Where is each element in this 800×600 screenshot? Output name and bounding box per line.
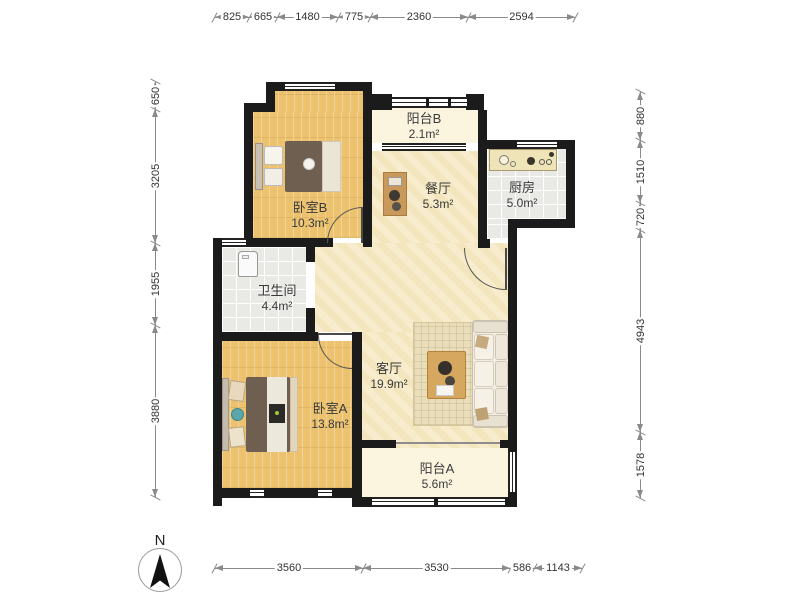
room-label-living: 客厅 19.9m² [354,361,424,392]
sink [499,155,509,165]
room-area: 5.6m² [422,477,453,492]
window [392,97,467,108]
wall-segment [364,238,372,247]
vase [389,190,400,201]
dimension: 2594 [468,17,575,18]
room-area: 19.9m² [370,377,407,392]
dimension: 4943 [640,230,641,432]
pillow [228,426,246,448]
room-name: 厨房 [509,180,535,196]
window-mullion [434,497,438,507]
room-label-dining: 餐厅 5.3m² [403,181,473,212]
north-label: N [136,532,184,549]
dimension: 1510 [640,140,641,203]
dimension: 1955 [155,243,156,325]
wall-segment [362,440,396,448]
stove-burner [546,159,552,165]
room-label-balcony-b: 阳台B 2.1m² [389,111,459,142]
room-name: 阳台A [420,461,455,477]
back-cushion [495,334,508,360]
window [508,452,517,492]
dimension: 3205 [155,109,156,243]
dimension: 586 [510,568,534,569]
room-name: 餐厅 [425,181,451,197]
sofa-icon [472,320,509,428]
room-area: 5.0m² [507,196,538,211]
sliding-door-track [396,442,500,444]
washer-panel [242,255,249,259]
room-area: 13.8m² [311,417,348,432]
room-area: 2.1m² [409,127,440,142]
dimension: 775 [338,17,370,18]
wall-segment [213,332,318,341]
dimension: 3880 [155,325,156,497]
washing-machine-icon [238,251,258,277]
stove-burner [539,159,545,165]
round-pillow [231,408,244,421]
room-label-kitchen: 厨房 5.0m² [487,180,557,211]
dimension: 825 [215,17,249,18]
pillow [264,168,283,186]
wall-segment [478,239,490,248]
window [285,82,335,91]
wall-segment [566,140,575,228]
room-area: 10.3m² [291,216,328,231]
dimension: 1480 [277,17,338,18]
wall-segment [478,110,487,248]
window [372,497,505,507]
throw-pillow [475,335,489,349]
window-mullion [448,97,451,108]
kitchen-counter-icon [489,149,557,171]
room-label-bedroom-b: 卧室B 10.3m² [275,200,345,231]
wall-segment [508,219,575,228]
dimension: 1578 [640,432,641,498]
compass: N [136,532,184,596]
stove-burner [527,157,535,165]
cabinet-tray [388,177,402,186]
stove-knob [549,152,554,157]
room-area: 4.4m² [262,299,293,314]
dimension: 2360 [370,17,468,18]
sink-drain [510,161,516,167]
round-cushion [303,158,315,170]
room-name: 卧室A [313,401,348,417]
vase [392,202,401,211]
wall-segment [244,238,333,247]
room-name: 客厅 [376,361,402,377]
room-name: 阳台B [407,111,442,127]
dimension: 3560 [215,568,363,569]
sofa-armrest [473,321,508,333]
wall-segment [213,332,222,506]
dimension: 3530 [363,568,510,569]
bed-headboard [222,378,229,451]
room-name: 卧室B [293,200,328,216]
wall-segment [500,440,517,448]
throw-pillow [475,407,489,421]
double-bed-icon [222,377,298,452]
dimension: 665 [249,17,277,18]
pillow [228,380,247,402]
room-area: 5.3m² [423,197,454,212]
teapot [438,361,452,375]
wall-segment [508,219,517,448]
wall-segment [306,238,315,262]
room-label-bedroom-a: 卧室A 13.8m² [295,401,365,432]
balcony-slider-window [382,143,466,151]
window [250,488,264,498]
floor-plan: 卧室B 10.3m² 阳台B 2.1m² 餐厅 5.3m² 厨房 5.0m² 卫… [0,0,800,600]
wall-segment [213,238,222,341]
wall-segment [244,103,253,247]
wall-segment [213,488,359,498]
window-mullion [426,97,429,108]
window [222,238,246,247]
coffee-table-icon [427,351,466,399]
back-cushion [495,388,508,414]
back-cushion [495,361,508,387]
floor-kitchen-ext [487,219,508,239]
room-label-bathroom: 卫生间 4.4m² [242,283,312,314]
window [517,140,557,149]
pillow [264,146,283,165]
window [318,488,332,498]
wall-segment [466,94,484,110]
double-bed-icon [255,141,341,192]
dimension: 650 [155,82,156,109]
dimension: 720 [640,203,641,230]
dimension: 880 [640,92,641,140]
room-label-balcony-a: 阳台A 5.6m² [402,461,472,492]
room-name: 卫生间 [257,283,296,299]
bed-headboard [255,143,263,190]
wall-segment [368,94,392,110]
dimension: 1143 [534,568,582,569]
tablet-dot [275,411,279,415]
blanket [322,141,341,192]
tray [436,385,454,396]
seat-cushion [474,361,494,387]
